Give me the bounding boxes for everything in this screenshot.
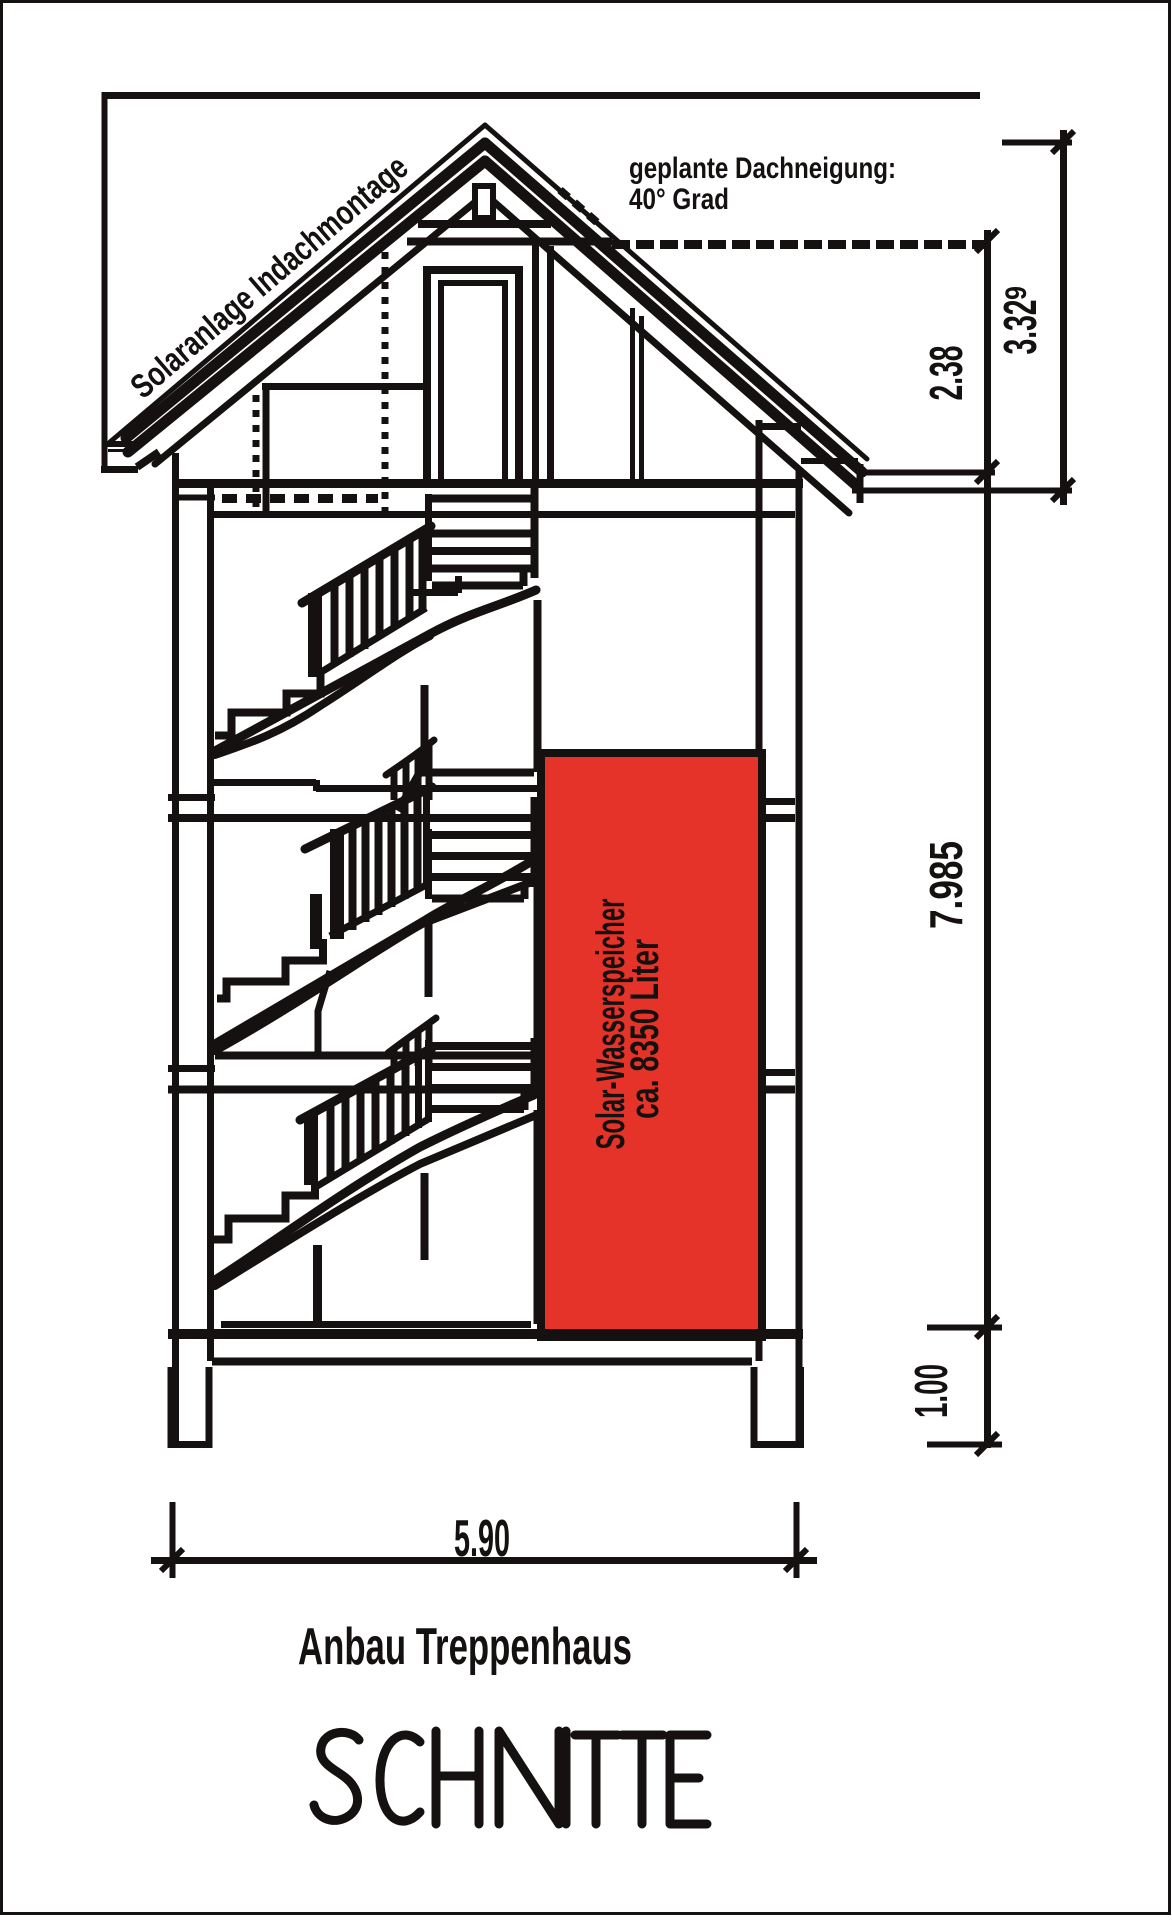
svg-text:3.32: 3.32 [994, 300, 1046, 355]
svg-text:1.00: 1.00 [905, 1364, 957, 1418]
svg-text:7.985: 7.985 [920, 841, 972, 929]
svg-text:9: 9 [1000, 286, 1033, 300]
svg-text:ca. 8350 Liter: ca. 8350 Liter [623, 939, 667, 1119]
svg-text:Anbau Treppenhaus: Anbau Treppenhaus [298, 1618, 632, 1676]
svg-text:2.38: 2.38 [920, 346, 972, 401]
svg-text:40° Grad: 40° Grad [629, 183, 729, 216]
svg-text:5.90: 5.90 [454, 1510, 510, 1568]
svg-text:geplante Dachneigung:: geplante Dachneigung: [629, 152, 896, 185]
